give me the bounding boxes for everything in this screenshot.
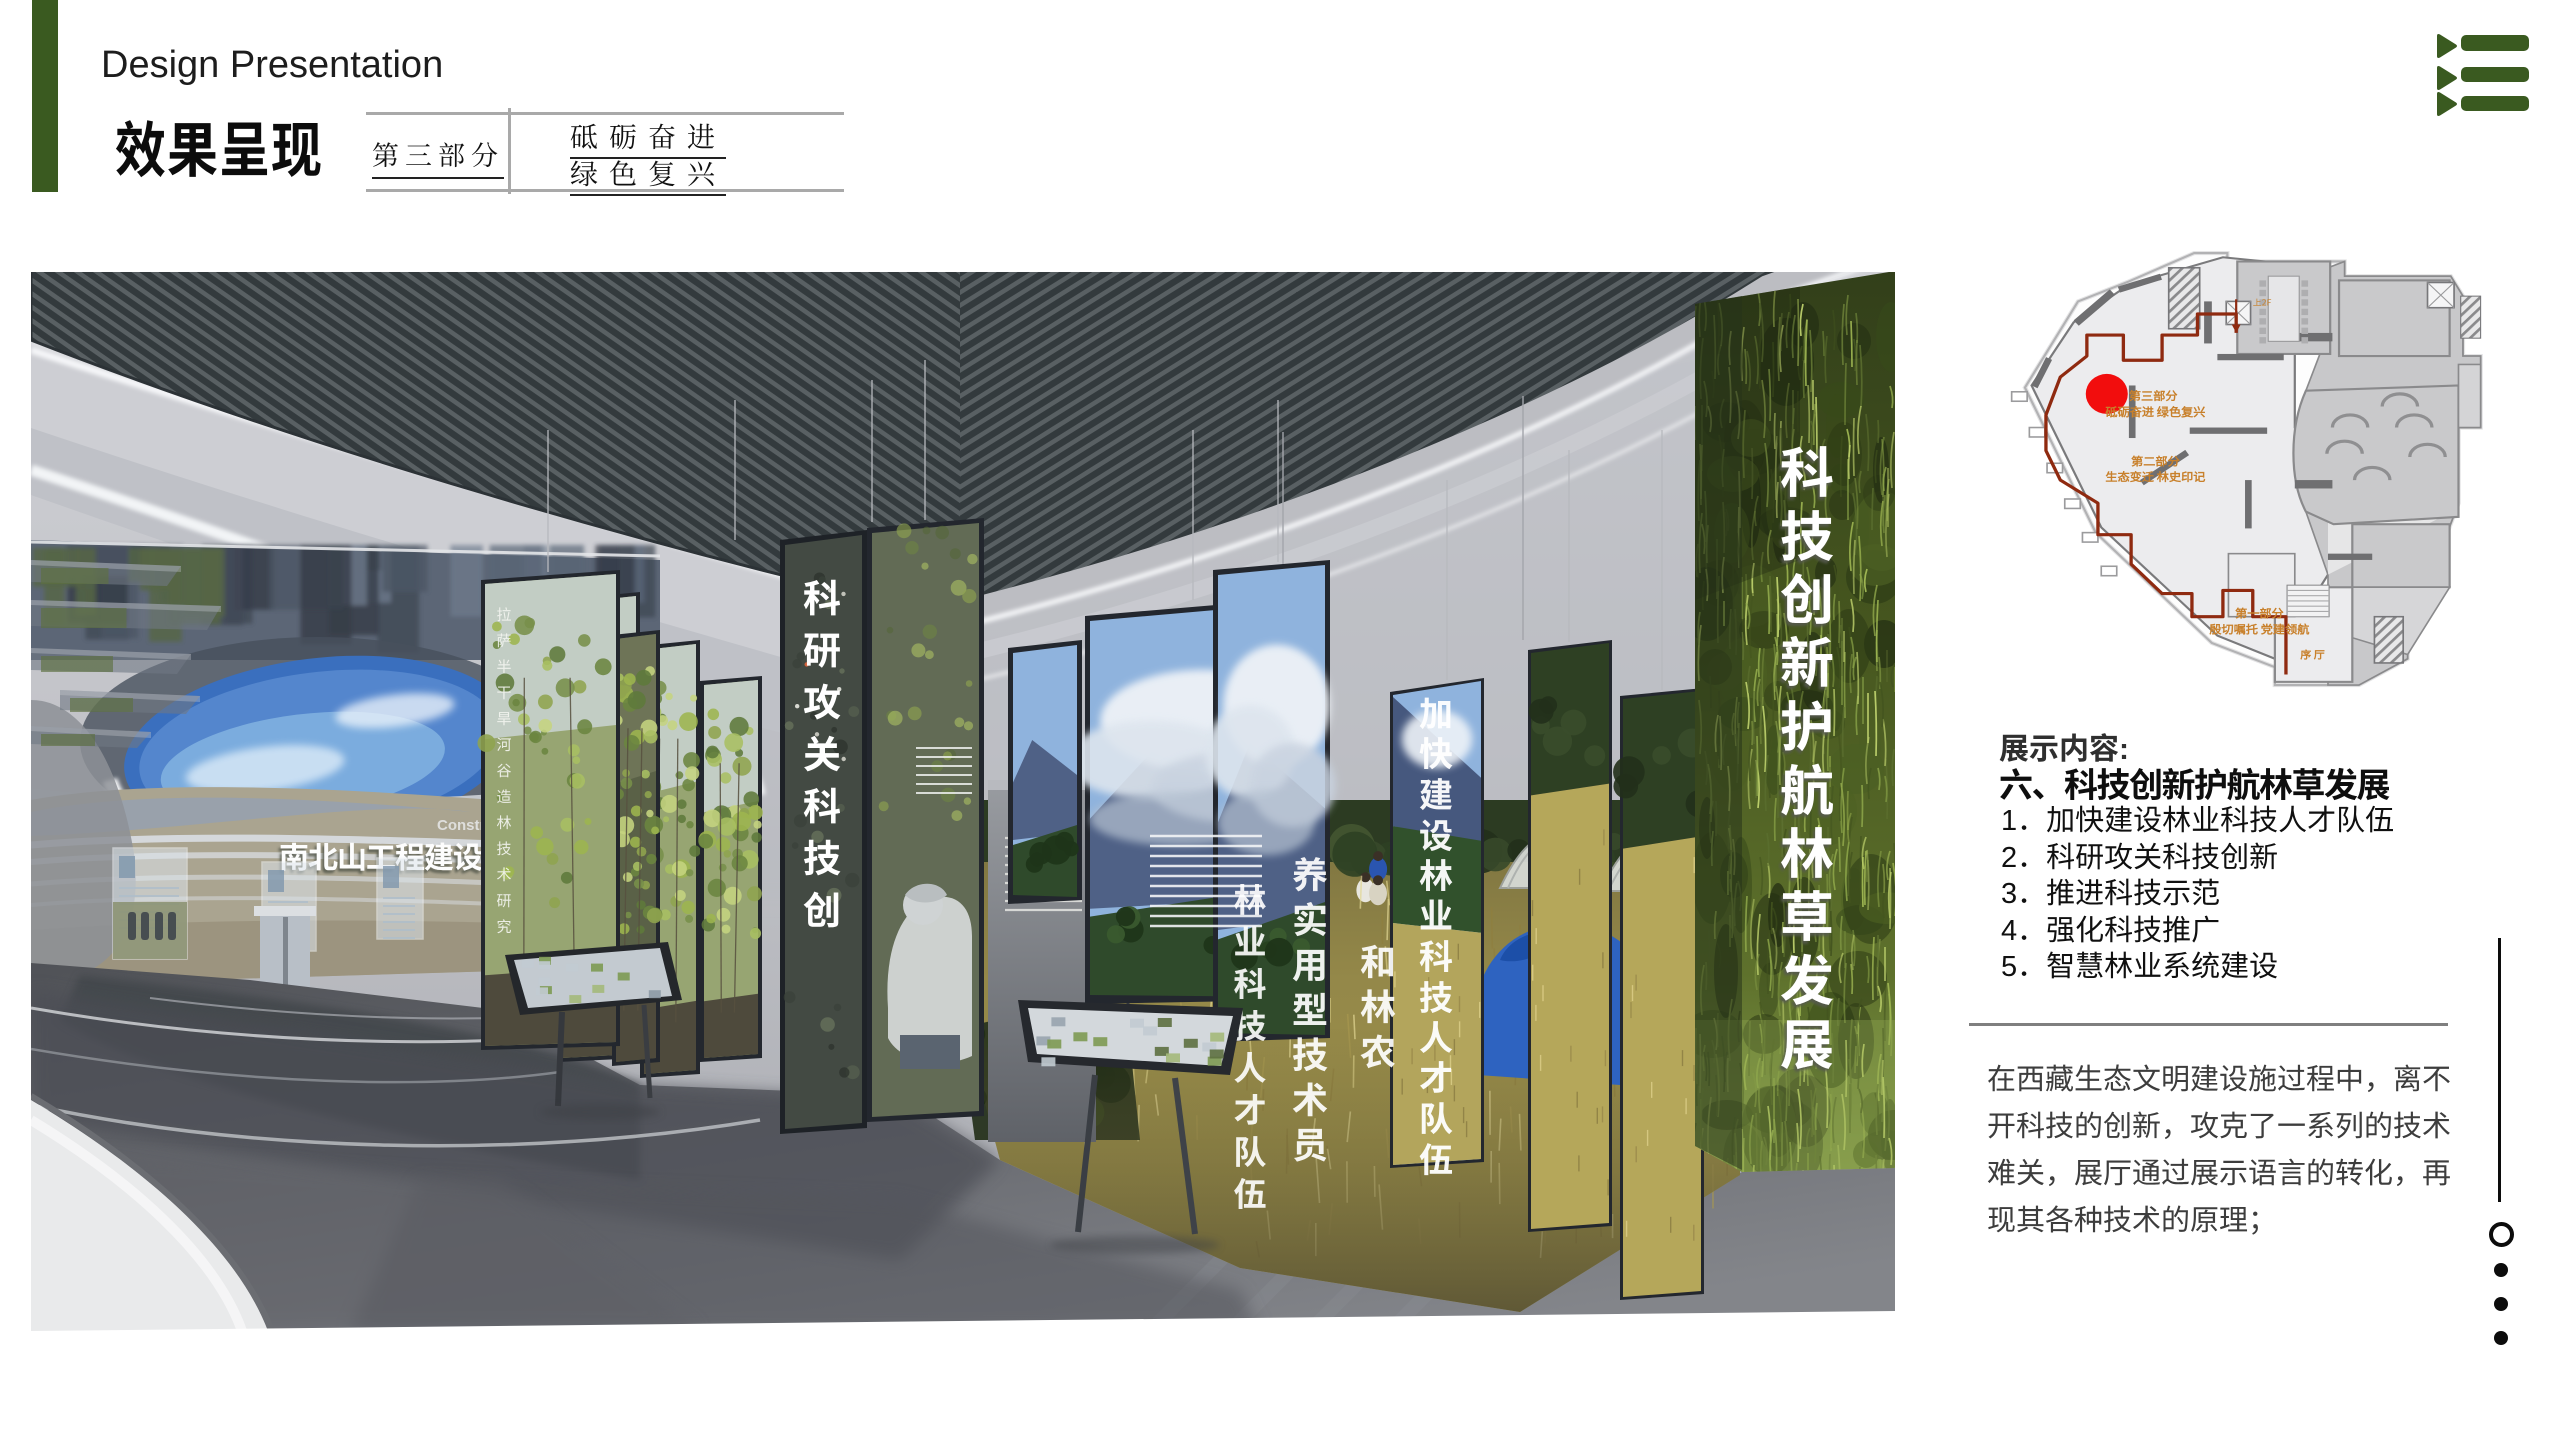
- svg-text:生态变迁 林史印记: 生态变迁 林史印记: [2105, 468, 2205, 485]
- svg-text:干: 干: [496, 682, 511, 703]
- svg-text:旱: 旱: [496, 708, 511, 729]
- svg-text:林: 林: [496, 812, 511, 833]
- svg-text:攻: 攻: [803, 672, 841, 727]
- svg-text:科: 科: [1234, 958, 1267, 1006]
- svg-text:造: 造: [496, 786, 511, 807]
- svg-text:员: 员: [1292, 1117, 1328, 1169]
- svg-text:人: 人: [1234, 1042, 1267, 1090]
- svg-text:萨: 萨: [496, 630, 511, 651]
- svg-text:创: 创: [803, 880, 841, 935]
- svg-text:展: 展: [1780, 1001, 1834, 1080]
- svg-text:殷切嘱托 党建领航: 殷切嘱托 党建领航: [2209, 621, 2309, 638]
- svg-text:术: 术: [496, 864, 511, 885]
- svg-text:技: 技: [496, 838, 511, 859]
- svg-text:究: 究: [496, 916, 511, 937]
- svg-text:农: 农: [1360, 1024, 1396, 1076]
- svg-text:研: 研: [496, 890, 511, 911]
- svg-text:伍: 伍: [1419, 1133, 1453, 1182]
- svg-text:才: 才: [1234, 1084, 1267, 1132]
- svg-text:科: 科: [803, 568, 841, 623]
- svg-text:拉: 拉: [496, 604, 511, 625]
- svg-text:半: 半: [496, 656, 511, 677]
- svg-text:砥砺奋进 绿色复兴: 砥砺奋进 绿色复兴: [2105, 403, 2205, 420]
- svg-text:第二部分: 第二部分: [2131, 453, 2180, 470]
- svg-text:关: 关: [803, 724, 841, 779]
- svg-text:队: 队: [1234, 1126, 1267, 1174]
- svg-text:第一部分: 第一部分: [2235, 605, 2284, 622]
- svg-text:林: 林: [1234, 874, 1267, 922]
- svg-text:科: 科: [803, 776, 841, 831]
- svg-text:第三部分: 第三部分: [2129, 388, 2178, 405]
- svg-text:序 厅: 序 厅: [2300, 647, 2325, 663]
- svg-text:河: 河: [496, 734, 511, 755]
- svg-text:上2F: 上2F: [2253, 297, 2272, 309]
- svg-text:研: 研: [803, 620, 841, 675]
- svg-text:业: 业: [1234, 916, 1267, 964]
- svg-text:伍: 伍: [1234, 1168, 1267, 1216]
- svg-text:技: 技: [803, 828, 841, 883]
- svg-text:谷: 谷: [496, 760, 511, 781]
